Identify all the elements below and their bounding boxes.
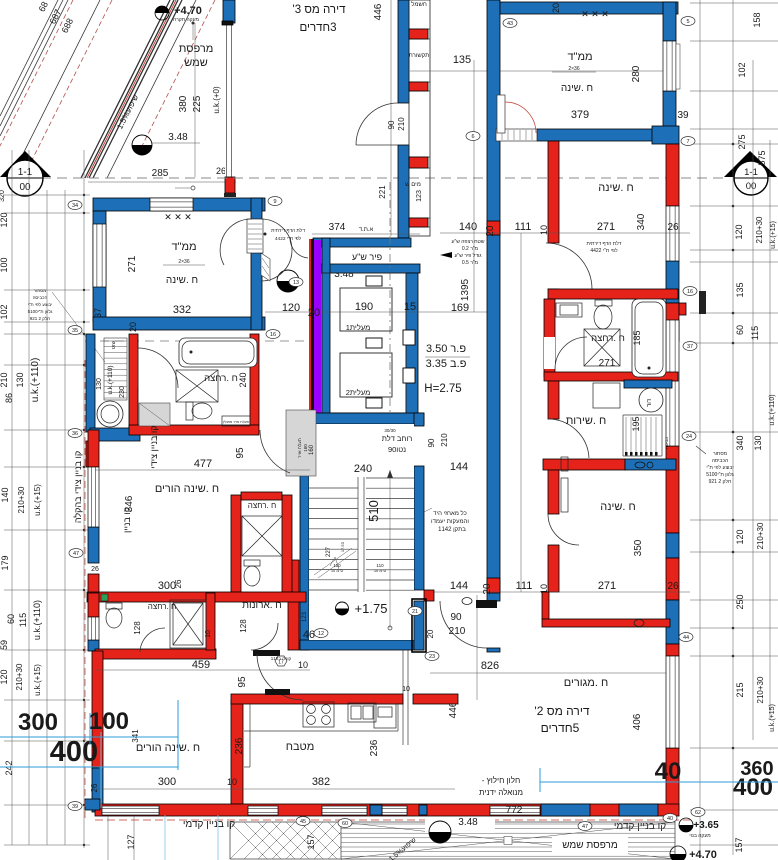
svg-text:5100גלוון ת"י: 5100גלוון ת"י [706, 471, 734, 478]
svg-text:מעקה תקרה: מעקה תקרה [173, 17, 199, 23]
svg-text:10: 10 [539, 225, 549, 235]
svg-text:285: 285 [152, 168, 169, 179]
svg-text:90: 90 [427, 438, 436, 447]
svg-text:מים ש: מים ש [405, 182, 421, 188]
svg-text:62: 62 [695, 810, 701, 816]
svg-text:13: 13 [293, 280, 299, 286]
svg-text:12: 12 [318, 631, 324, 637]
svg-text:130: 130 [96, 378, 103, 390]
svg-text:340: 340 [636, 213, 647, 230]
svg-text:תקשורת: תקשורת [409, 53, 430, 59]
svg-text:דירה מס 2': דירה מס 2' [534, 704, 590, 718]
svg-text:157: 157 [306, 834, 316, 849]
svg-text:128: 128 [133, 621, 142, 635]
svg-text:95: 95 [235, 447, 246, 459]
svg-text:40: 40 [655, 758, 682, 785]
svg-text:פ.ב 3.35: פ.ב 3.35 [426, 358, 467, 370]
svg-text:271: 271 [597, 221, 615, 233]
svg-text:510: 510 [366, 500, 381, 522]
svg-text:382: 382 [312, 776, 330, 788]
svg-text:210+30: 210+30 [15, 663, 24, 690]
svg-text:59: 59 [0, 640, 9, 650]
svg-text:תעלת אויר: תעלת אויר [297, 438, 302, 458]
svg-text:ח .רחצה: ח .רחצה [148, 602, 176, 611]
svg-text:הכביסה: הכביסה [712, 458, 728, 464]
svg-text:מעלית1: מעלית1 [346, 323, 371, 332]
svg-text:20: 20 [482, 583, 493, 595]
svg-text:210+30: 210+30 [756, 522, 765, 549]
svg-text:u.k.(+15): u.k.(+15) [33, 664, 42, 696]
svg-text:26: 26 [216, 166, 226, 176]
svg-text:210: 210 [0, 372, 9, 387]
svg-text:20: 20 [485, 225, 496, 237]
svg-text:120: 120 [0, 212, 9, 227]
svg-text:34: 34 [72, 203, 78, 209]
svg-text:מטבח: מטבח [286, 741, 315, 753]
svg-text:60: 60 [6, 614, 16, 624]
svg-text:דלת הדף דירתית: דלת הדף דירתית [586, 240, 621, 247]
svg-text:111: 111 [516, 580, 533, 592]
svg-text:86: 86 [4, 393, 14, 403]
svg-text:772: 772 [506, 805, 523, 816]
svg-text:160: 160 [303, 444, 308, 452]
svg-text:ח .שינה הורים: ח .שינה הורים [136, 742, 200, 754]
svg-text:380: 380 [178, 95, 189, 112]
svg-text:35: 35 [72, 328, 78, 334]
svg-text:45: 45 [300, 819, 306, 825]
svg-text:120: 120 [0, 669, 9, 684]
svg-text:u.k.(+110): u.k.(+110) [32, 600, 42, 640]
svg-text:26: 26 [91, 566, 99, 573]
svg-text:3חדרים: 3חדרים [299, 22, 336, 34]
svg-text:115: 115 [18, 613, 28, 627]
svg-text:17.5ה: 17.5ה [340, 541, 345, 552]
svg-text:1-1: 1-1 [18, 167, 33, 178]
svg-text:10: 10 [205, 630, 212, 638]
svg-text:44: 44 [683, 635, 689, 641]
svg-text:26: 26 [174, 579, 183, 588]
svg-text:מרפסת שמש: מרפסת שמש [562, 840, 618, 851]
svg-text:127: 127 [126, 834, 136, 849]
svg-text:יבוצע לפי ת"י: יבוצע לפי ת"י [706, 464, 733, 471]
svg-text:בתקן 1142: בתקן 1142 [438, 527, 466, 533]
svg-text:144: 144 [450, 580, 468, 592]
svg-text:39: 39 [72, 804, 78, 810]
svg-text:16: 16 [687, 289, 693, 295]
svg-text:160: 160 [309, 444, 315, 455]
svg-text:ח .שינה: ח .שינה [166, 275, 198, 286]
svg-text:5חדרים: 5חדרים [541, 721, 580, 735]
svg-text:210+30: 210+30 [17, 486, 26, 513]
svg-text:123: 123 [302, 611, 308, 622]
svg-text:26: 26 [90, 783, 99, 792]
svg-text:ח .שינה: ח .שינה [598, 182, 634, 194]
svg-text:רוחב דלת: רוחב דלת [382, 434, 413, 443]
svg-text:20: 20 [128, 322, 138, 332]
svg-text:406: 406 [632, 713, 643, 730]
svg-text:221: 221 [378, 185, 387, 199]
svg-text:215: 215 [735, 682, 745, 697]
svg-text:מסתור: מסתור [713, 451, 728, 457]
svg-text:15: 15 [404, 301, 416, 313]
svg-text:הכביסה: הכביסה [33, 295, 48, 300]
svg-text:4422 לפי ת"י: 4422 לפי ת"י [590, 247, 618, 254]
svg-text:דירה מס 3': דירה מס 3' [293, 4, 347, 16]
svg-text:6: 6 [471, 134, 474, 140]
svg-text:10: 10 [402, 686, 410, 693]
svg-text:123: 123 [416, 190, 423, 202]
svg-text:400: 400 [50, 736, 98, 768]
svg-text:כביסה: כביסה [664, 436, 669, 449]
svg-text:שמש: שמש [184, 57, 208, 69]
svg-text:210: 210 [449, 626, 466, 637]
svg-text:00: 00 [19, 182, 31, 193]
svg-text:+1.75: +1.75 [355, 601, 388, 616]
svg-text:100: 100 [0, 257, 9, 272]
svg-text:37: 37 [93, 308, 103, 318]
svg-text:ח .שינה הורים: ח .שינה הורים [155, 483, 219, 495]
svg-text:ח .רחצה: ח .רחצה [204, 373, 238, 384]
svg-text:90: 90 [387, 120, 396, 129]
svg-text:26: 26 [667, 222, 679, 233]
svg-text:26: 26 [667, 581, 679, 592]
svg-text:+3.65: +3.65 [693, 820, 719, 831]
svg-text:1-1: 1-1 [744, 167, 758, 178]
svg-text:275: 275 [737, 134, 747, 149]
svg-text:קו בניין צידי בהקלה: קו בניין צידי בהקלה [73, 451, 83, 523]
svg-text:והמעקות יעמדו: והמעקות יעמדו [431, 519, 469, 525]
svg-text:341: 341 [131, 729, 140, 743]
svg-text:2×36: 2×36 [178, 259, 189, 265]
svg-text:350: 350 [633, 539, 644, 556]
svg-text:u.k.(+110): u.k.(+110) [107, 366, 114, 395]
svg-text:קורה ב110: קורה ב110 [271, 656, 292, 661]
svg-text:210: 210 [440, 433, 449, 447]
svg-text:+4.70: +4.70 [174, 5, 202, 17]
svg-text:✕ ✕ ✕: ✕ ✕ ✕ [581, 9, 609, 19]
svg-text:ח .שינה: ח .שינה [600, 501, 636, 513]
svg-text:10: 10 [298, 660, 308, 670]
svg-text:H=2.75: H=2.75 [424, 383, 461, 395]
svg-text:2×36: 2×36 [568, 66, 579, 72]
svg-text:10 ס"מ: 10 ס"מ [331, 568, 344, 573]
svg-text:575: 575 [757, 150, 767, 165]
svg-text:144: 144 [450, 461, 468, 473]
svg-text:דוד: דוד [647, 398, 653, 407]
svg-text:210+30: 210+30 [755, 216, 764, 243]
svg-text:135: 135 [735, 282, 745, 297]
svg-text:מרפסת: מרפסת [179, 43, 214, 55]
svg-text:374: 374 [329, 222, 346, 233]
svg-text:39: 39 [677, 110, 689, 121]
svg-text:120: 120 [734, 224, 744, 239]
svg-text:271: 271 [599, 358, 616, 369]
svg-text:90: 90 [450, 612, 462, 623]
svg-text:111: 111 [515, 221, 532, 233]
svg-text:מנואלה ידנית: מנואלה ידנית [479, 788, 523, 797]
svg-text:כל מאחזי היד: כל מאחזי היד [433, 509, 467, 517]
svg-text:826: 826 [481, 660, 499, 672]
svg-text:קו בניין קדמי: קו בניין קדמי [614, 821, 666, 832]
svg-text:130: 130 [15, 372, 25, 387]
svg-text:גודל פיר ש"ע: גודל פיר ש"ע [455, 252, 482, 259]
svg-text:קו בניין צידי: קו בניין צידי [149, 425, 159, 468]
svg-text:u.k.(+110): u.k.(+110) [30, 358, 41, 403]
svg-text:10 ס"מ: 10 ס"מ [374, 568, 387, 573]
svg-text:43: 43 [507, 21, 513, 27]
svg-text:240: 240 [238, 372, 248, 387]
svg-text:24: 24 [686, 434, 692, 440]
svg-text:169: 169 [451, 302, 469, 314]
svg-text:100: 100 [89, 708, 129, 735]
svg-text:20: 20 [426, 629, 435, 638]
svg-text:קו בניין קדמי: קו בניין קדמי [183, 819, 235, 830]
svg-text:23: 23 [429, 654, 435, 660]
svg-text:158: 158 [752, 12, 762, 27]
svg-text:921 חלק 2: 921 חלק 2 [709, 478, 732, 485]
svg-text:332: 332 [173, 304, 191, 316]
svg-text:210+30: 210+30 [756, 676, 765, 703]
svg-text:60: 60 [342, 821, 348, 827]
svg-text:400: 400 [733, 774, 773, 801]
svg-text:תעלת אויר מאולץ: תעלת אויר מאולץ [223, 420, 250, 424]
svg-text:1395: 1395 [460, 278, 471, 301]
svg-text:102: 102 [0, 304, 9, 319]
svg-text:60: 60 [735, 325, 745, 335]
svg-text:9: 9 [273, 199, 276, 205]
svg-text:ממ"ד: ממ"ד [171, 241, 196, 253]
svg-text:157: 157 [734, 837, 744, 852]
svg-text:u.k.(+0): u.k.(+0) [212, 86, 221, 114]
svg-text:u.k.(+15): u.k.(+15) [770, 221, 777, 249]
svg-text:477: 477 [194, 458, 212, 470]
svg-text:135: 135 [453, 54, 471, 66]
svg-text:u.k.(+15): u.k.(+15) [769, 704, 776, 732]
svg-text:130: 130 [753, 435, 763, 450]
svg-text:20: 20 [551, 3, 561, 13]
svg-text:185: 185 [632, 330, 642, 345]
svg-text:227: 227 [326, 546, 332, 557]
svg-text:ח .שירות: ח .שירות [566, 415, 607, 427]
svg-text:5: 5 [686, 19, 689, 25]
svg-text:459: 459 [192, 659, 210, 671]
svg-text:שטח רצפה ש"ע: שטח רצפה ש"ע [452, 239, 485, 245]
svg-text:225: 225 [192, 95, 203, 112]
svg-text:0.2 מ"ר: 0.2 מ"ר [462, 246, 479, 252]
svg-text:חשמל: חשמל [411, 0, 427, 8]
svg-text:5100גלוון ת"י: 5100גלוון ת"י [28, 309, 53, 314]
svg-text:קו בניין: קו בניין [122, 507, 132, 533]
svg-text:47: 47 [73, 551, 79, 557]
svg-text:230: 230 [119, 386, 126, 398]
svg-text:3.48: 3.48 [168, 132, 188, 143]
svg-text:מסתור: מסתור [34, 288, 47, 293]
svg-text:שוט: שוט [111, 341, 117, 350]
svg-text:379: 379 [571, 109, 589, 121]
svg-text:120: 120 [735, 529, 745, 544]
svg-text:179: 179 [0, 555, 10, 570]
svg-text:ח .רחצה: ח .רחצה [591, 333, 625, 344]
svg-text:16: 16 [270, 332, 276, 338]
svg-text:210: 210 [397, 117, 406, 131]
svg-text:300: 300 [158, 776, 176, 788]
svg-text:20: 20 [308, 307, 320, 319]
svg-text:u.k.(+15): u.k.(+15) [33, 484, 42, 516]
svg-text:מעלית2: מעלית2 [346, 388, 371, 397]
svg-text:4422 לפי ת"י: 4422 לפי ת"י [275, 235, 302, 242]
svg-text:320: 320 [0, 190, 6, 202]
svg-text:271: 271 [127, 255, 138, 272]
svg-text:271: 271 [598, 580, 616, 592]
svg-text:ממ"ד: ממ"ד [567, 51, 592, 63]
svg-text:פיר ש"ע: פיר ש"ע [352, 252, 382, 262]
svg-text:236: 236 [369, 739, 380, 756]
svg-text:140: 140 [0, 487, 10, 502]
svg-text:- חלון חילוץ: - חלון חילוץ [482, 776, 520, 785]
svg-text:102: 102 [737, 62, 747, 77]
svg-text:36: 36 [72, 431, 78, 437]
svg-text:00: 00 [746, 181, 757, 192]
svg-text:120: 120 [282, 302, 300, 314]
svg-text:u.k.(+110): u.k.(+110) [769, 394, 776, 425]
svg-text:236: 236 [234, 737, 245, 754]
svg-text:דלת הדף דירתית: דלת הדף דירתית [271, 227, 305, 234]
svg-text:115: 115 [750, 326, 760, 340]
svg-text:פ.ר 3.50: פ.ר 3.50 [426, 343, 466, 355]
svg-text:240: 240 [354, 463, 372, 475]
svg-text:ח .שינה: ח .שינה [561, 83, 593, 94]
svg-text:10: 10 [227, 777, 237, 787]
svg-text:300: 300 [18, 709, 58, 736]
svg-text:מעקה בנוי: מעקה בנוי [689, 833, 711, 839]
svg-text:3.48: 3.48 [458, 817, 478, 828]
svg-text:190: 190 [355, 301, 373, 313]
svg-text:90נטו: 90נטו [388, 445, 406, 454]
svg-text:37: 37 [687, 344, 693, 350]
svg-text:128: 128 [239, 619, 248, 633]
svg-text:ח .רחצה: ח .רחצה [248, 501, 276, 510]
svg-text:250: 250 [735, 594, 745, 609]
svg-text:א.ת.ד: א.ת.ד [359, 227, 374, 233]
svg-text:+4.70: +4.70 [689, 849, 717, 860]
svg-text:ח .מגורים: ח .מגורים [564, 677, 608, 689]
svg-text:242: 242 [4, 760, 14, 775]
svg-text:7: 7 [686, 139, 689, 145]
svg-text:47: 47 [582, 824, 588, 830]
svg-text:280: 280 [631, 65, 642, 82]
svg-text:30/30: 30/30 [384, 428, 396, 433]
svg-text:95: 95 [237, 676, 248, 688]
svg-text:446: 446 [373, 3, 384, 20]
svg-text:21: 21 [412, 609, 418, 615]
svg-text:ח .ארונות: ח .ארונות [242, 600, 282, 611]
svg-text:140: 140 [459, 221, 477, 233]
svg-text:0.5 מ"ר: 0.5 מ"ר [462, 260, 479, 266]
svg-text:40: 40 [667, 816, 673, 822]
svg-text:340: 340 [735, 435, 745, 450]
svg-text:יבוצע לפי ת"י: יבוצע לפי ת"י [28, 302, 53, 307]
svg-text:✕ ✕ ✕: ✕ ✕ ✕ [164, 212, 192, 222]
